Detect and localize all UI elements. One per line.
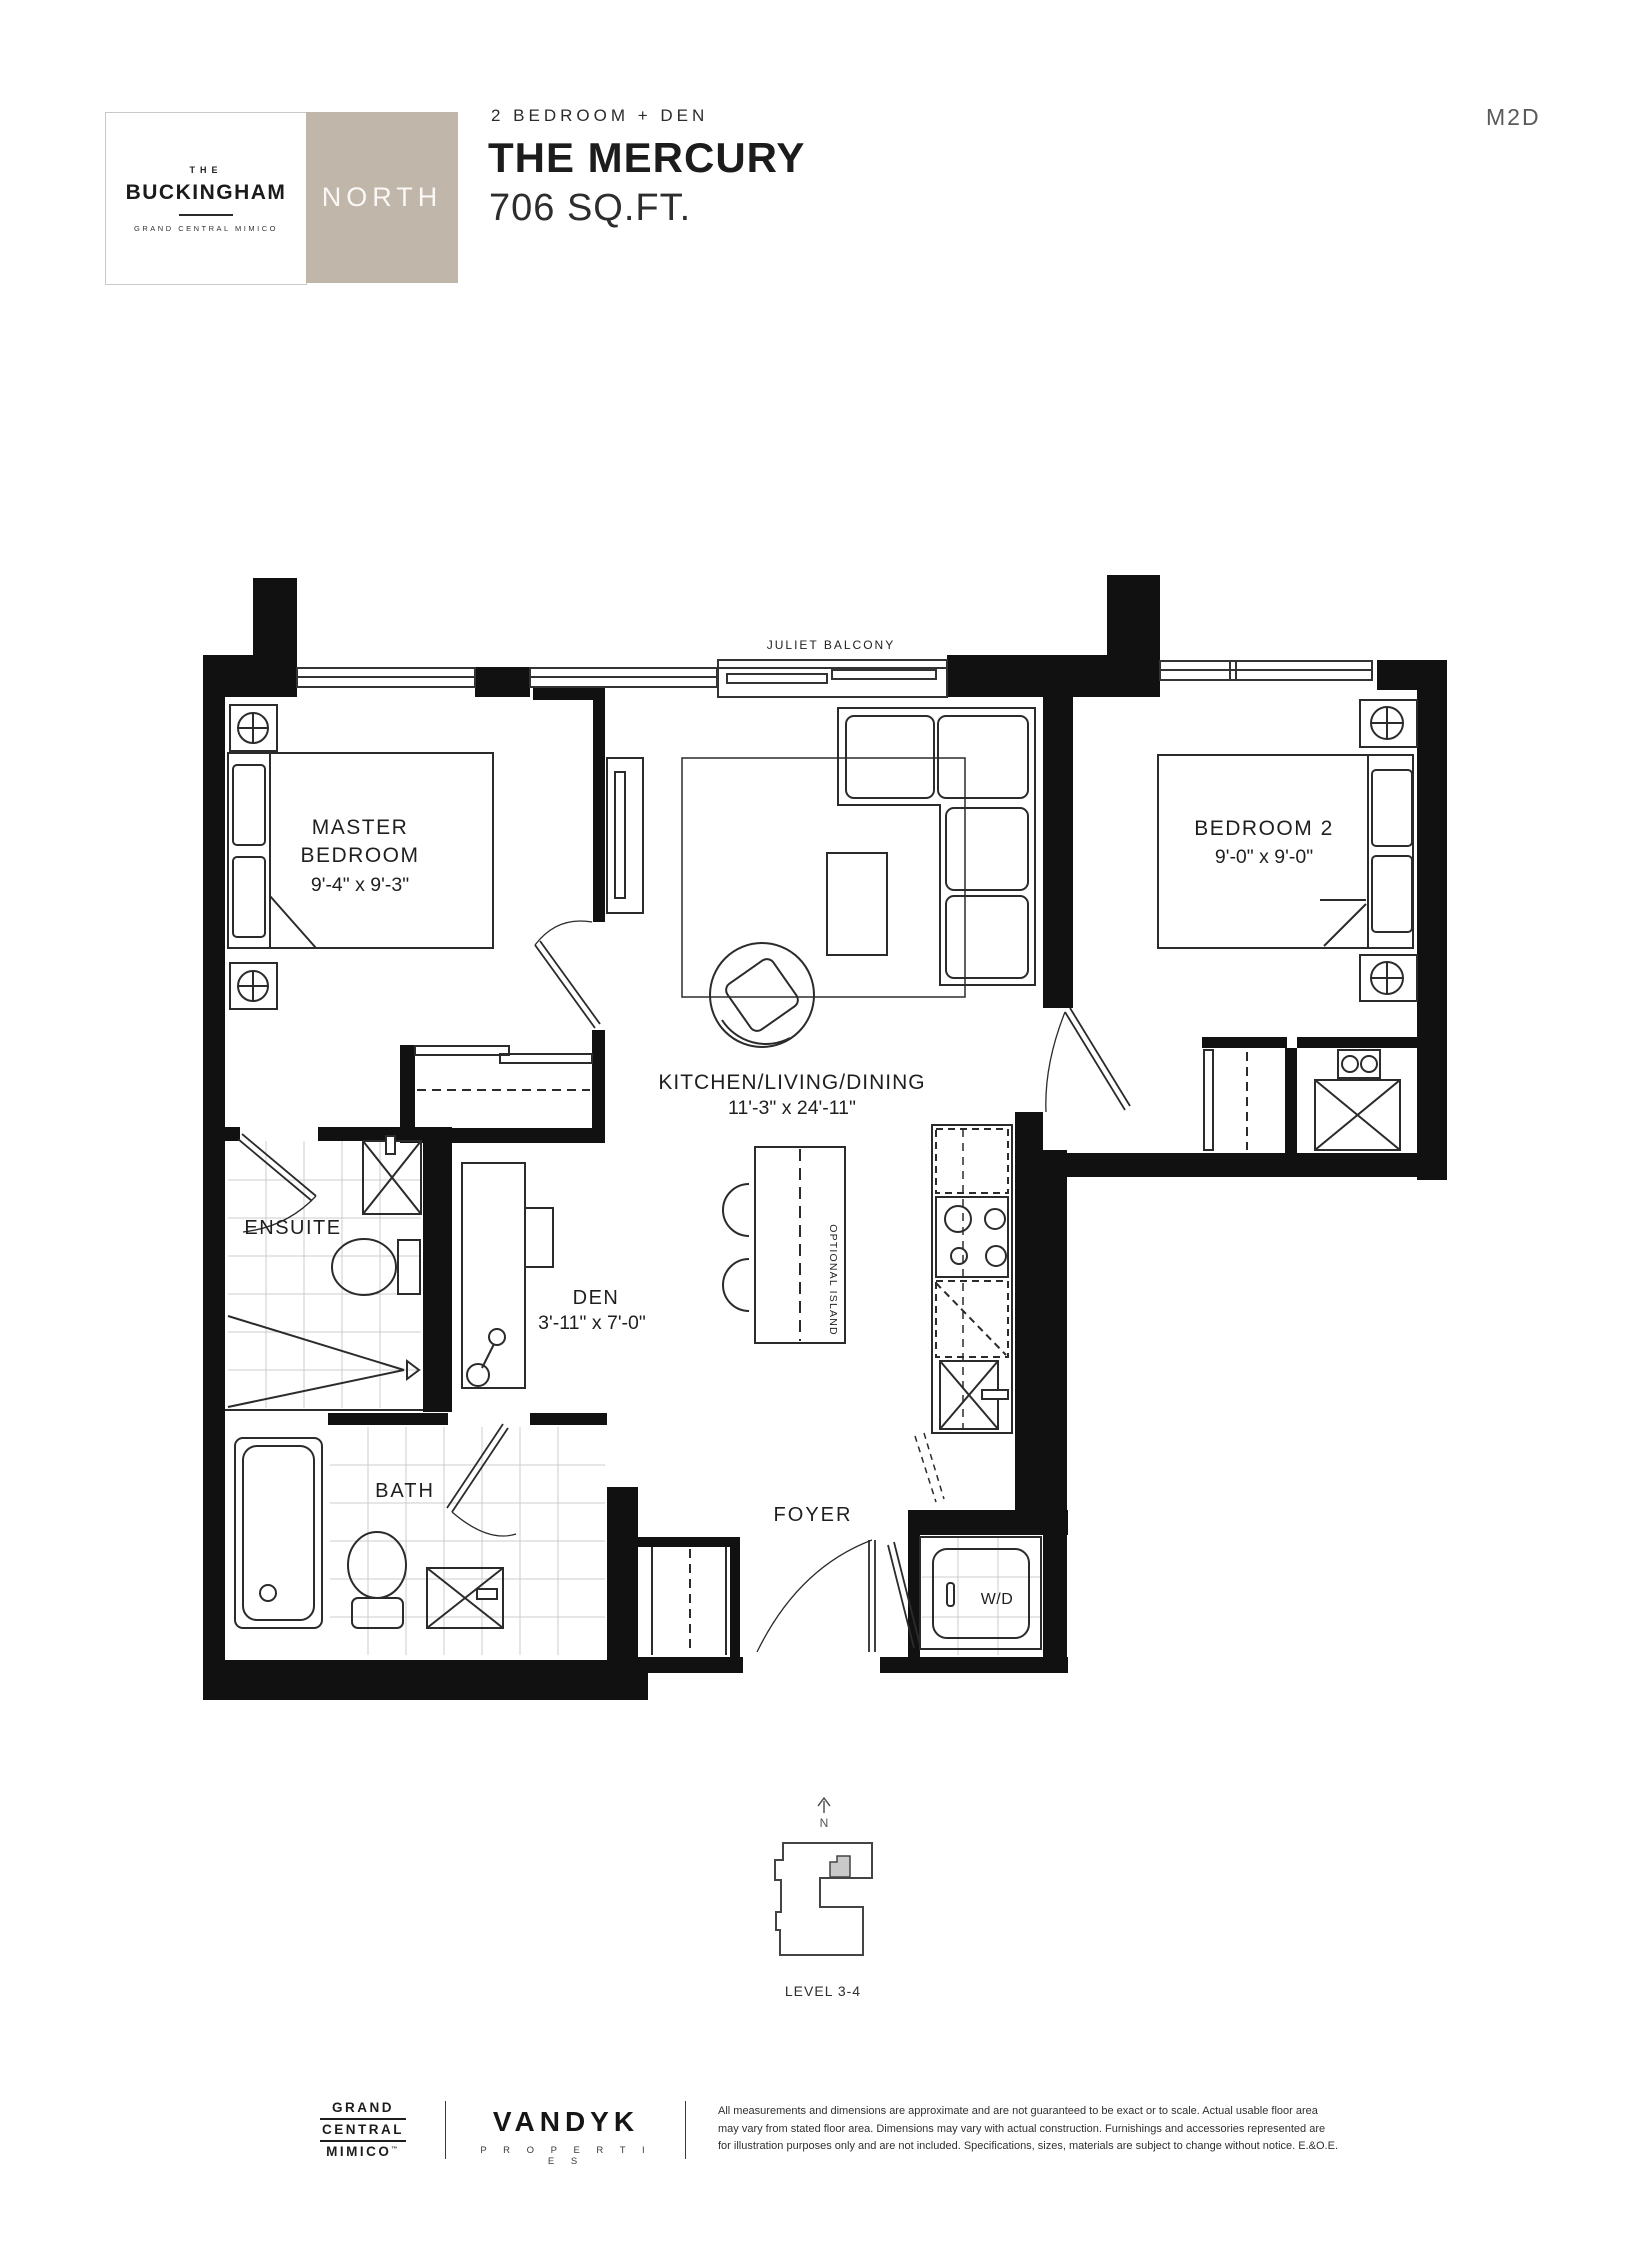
foyer-label: FOYER [774,1504,853,1526]
lounge-chair [710,943,814,1047]
kitchen-living-dining-label: KITCHEN/LIVING/DINING [658,1071,925,1094]
disclaimer-text: All measurements and dimensions are appr… [718,2103,1378,2156]
master-closet [415,1046,592,1090]
master-bedroom-label: MASTER [312,816,409,839]
den-desk [462,1163,553,1388]
kitchen-living-dining-dims: 11'-3" x 24'-11" [728,1097,856,1119]
tv-console [607,758,643,913]
island-stools [723,1184,749,1311]
coffee-table [827,853,887,955]
kitchen-counter [915,1125,1012,1502]
windows [297,660,1372,697]
bedroom2-closet [1204,1050,1400,1150]
trademark-symbol: ™ [391,2147,400,2153]
bedroom2-door [1046,1008,1130,1112]
bedroom2-dims: 9'-0" x 9'-0" [1215,846,1313,868]
master-bedroom-dims: 9'-4" x 9'-3" [311,874,409,896]
juliet-balcony-door [718,660,947,697]
bedroom2-label: BEDROOM 2 [1194,817,1334,840]
floorplan-sheet: THE BUCKINGHAM GRAND CENTRAL MIMICO NORT… [0,0,1650,2250]
footer-divider-1 [445,2101,446,2159]
optional-island-label: OPTIONAL ISLAND [827,1224,839,1336]
keyplan-level-label: LEVEL 3-4 [785,1983,861,1999]
sectional-sofa [838,708,1035,985]
vandyk-logo: VANDYK P R O P E R T I E S [478,2106,654,2167]
foyer-closet [652,1547,726,1655]
rug [682,758,965,997]
bath-label: BATH [375,1480,435,1502]
keyplan-unit-marker [830,1856,850,1877]
svg-text:BEDROOM: BEDROOM [300,844,419,867]
ensuite-label: ENSUITE [244,1217,341,1239]
footer-divider-2 [685,2101,686,2159]
juliet-balcony-label: JULIET BALCONY [767,638,895,652]
den-dims: 3'-11" x 7'-0" [538,1312,646,1334]
entry-door [757,1540,875,1652]
floorplan-drawing: JULIET BALCONY MASTER BEDROOM 9'-4" x 9'… [0,0,1650,2250]
north-arrow [818,1798,830,1813]
den-label: DEN [573,1287,620,1309]
north-letter: N [820,1816,829,1830]
master-door [535,921,600,1028]
wd-label: W/D [981,1591,1014,1608]
grand-central-mimico-logo: GRAND CENTRAL MIMICO™ [320,2098,406,2162]
ensuite-fixtures [225,1136,423,1410]
keyplan: N LEVEL 3-4 [775,1798,872,1999]
bath-fixtures [235,1438,503,1628]
